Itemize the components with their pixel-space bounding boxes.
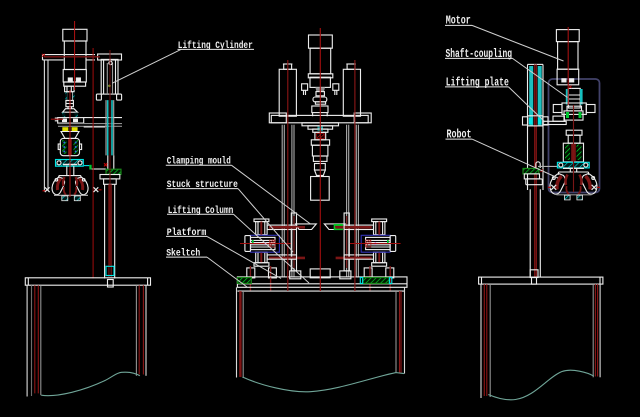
svg-text:Stuck structure: Stuck structure [167,179,238,191]
svg-text:Lifting Cylinder: Lifting Cylinder [178,40,253,52]
svg-text:Skeltch: Skeltch [166,248,200,260]
svg-text:Platform: Platform [167,227,207,239]
svg-text:Lifting plate: Lifting plate [446,77,509,90]
svg-text:Clamping mould: Clamping mould [167,156,231,168]
svg-text:Lifting Column: Lifting Column [168,205,234,217]
svg-text:Robot: Robot [447,129,472,142]
svg-text:Shaft-coupling: Shaft-coupling [446,48,513,61]
